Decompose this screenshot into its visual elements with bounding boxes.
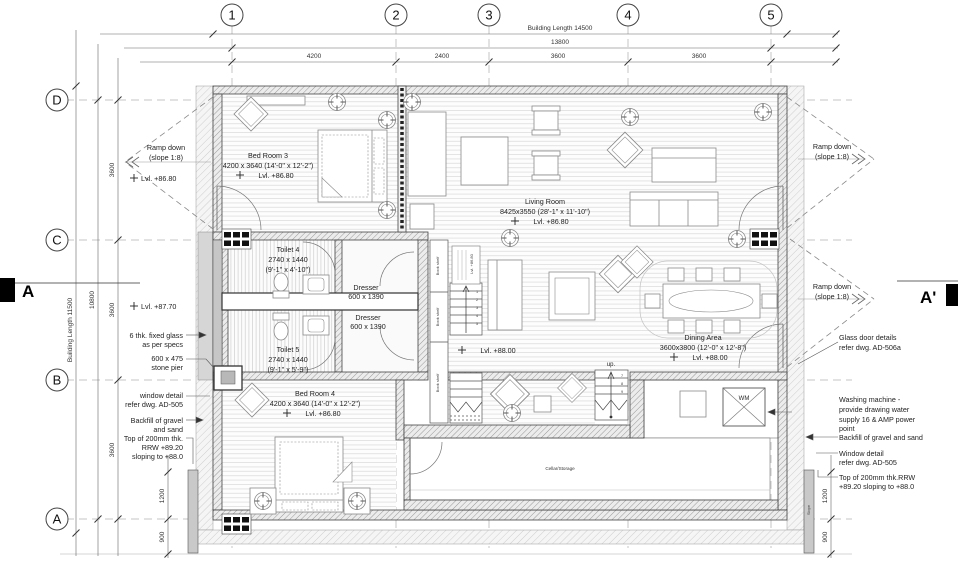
coffee-table	[461, 137, 508, 185]
sink-toilet4	[303, 275, 329, 294]
up-label: up.	[607, 362, 616, 368]
hall-table	[549, 272, 595, 320]
grid-col-3: 3	[485, 8, 492, 23]
dining-table	[663, 284, 760, 318]
cabinet	[408, 112, 446, 196]
utility-table	[680, 391, 706, 417]
ceiling-light-icon	[502, 230, 519, 247]
dim-3600-a: 3600	[551, 53, 566, 60]
column-checker-left	[222, 229, 251, 249]
bookshelf2-label: Book shelf	[435, 307, 440, 327]
stone-pier	[214, 366, 242, 390]
toilet4-size: 2740 x 1440	[268, 255, 308, 264]
grid-row-d: D	[52, 93, 61, 108]
dim-13800: 13800	[551, 39, 569, 46]
stair-num: 7	[621, 374, 623, 378]
ceiling-light-icon	[404, 94, 421, 111]
floor-plan-svg: 1 2 3 4 5 D C B A Building Length 14500 …	[0, 0, 960, 584]
bedroom4-level: Lvl. +86.80	[305, 409, 340, 418]
dim-900-right: 900	[822, 531, 829, 542]
right-backfill: Backfill of gravel and sand	[839, 433, 923, 442]
grid-col-2: 2	[392, 8, 399, 23]
right-washing-2: provide drawing water	[839, 405, 910, 414]
bookshelf3-label: Book shelf	[435, 373, 440, 393]
column-checker-right	[750, 229, 779, 249]
stair-num: 8	[621, 382, 623, 386]
left-annotations: Ramp down (slope 1:8) Lvl. +86.80 Lvl. +…	[124, 143, 185, 461]
dresser1-size: 600 x 1390	[348, 292, 384, 301]
grid-row-c: C	[52, 233, 61, 248]
stair-lower-flight	[450, 373, 482, 423]
dim-3600-left3: 3600	[109, 442, 116, 457]
slope-label: Slope	[806, 504, 811, 515]
plumbing-duct	[222, 293, 418, 310]
stair-num: 4	[476, 314, 478, 318]
grid-row-b: B	[53, 373, 62, 388]
right-rrw-2: +89.20 sloping to +88.0	[839, 482, 914, 491]
left-backfill-2: and sand	[153, 425, 183, 434]
living-name: Living Room	[525, 197, 565, 206]
dresser1-name: Dresser	[353, 283, 379, 292]
right-washing-3: supply 16 & AMP power	[839, 415, 916, 424]
right-ramp1-line2: (slope 1:8)	[815, 152, 849, 161]
stair-num: 1	[476, 290, 478, 294]
dresser2-size: 600 x 1390	[350, 322, 386, 331]
wc-toilet4	[273, 273, 289, 298]
right-window-1: Window detail	[839, 449, 884, 458]
grid-row-a: A	[53, 512, 62, 527]
left-backfill-1: Backfill of gravel	[131, 416, 184, 425]
dim-building-length-top: Building Length 14500	[528, 25, 593, 32]
left-pier-2: stone pier	[151, 363, 183, 372]
left-rrw-1: Top of 200mm thk.	[124, 434, 183, 443]
bedroom3-level: Lvl. +86.80	[258, 171, 293, 180]
ceiling-light-icon	[379, 112, 396, 129]
dim-3600-b: 3600	[692, 53, 707, 60]
ceiling-light-icon	[329, 94, 346, 111]
dim-4200: 4200	[307, 53, 322, 60]
living-size: 8425x3550 (28'-1" x 11'-10")	[500, 207, 590, 216]
right-washing-4: point	[839, 424, 855, 433]
bed-bedroom3	[318, 130, 387, 202]
right-glassdoor-1: Glass door details	[839, 333, 897, 342]
toilet4-size-ft: (9'-1" x 4'-10")	[266, 265, 311, 274]
right-washing-1: Washing machine -	[839, 395, 901, 404]
toilet4-name: Toilet 4	[277, 245, 300, 254]
ceiling-light-icon	[379, 202, 396, 219]
left-lvl-c: Lvl. +87.70	[141, 302, 176, 311]
dresser2-name: Dresser	[355, 313, 381, 322]
ceiling-light-icon	[504, 405, 521, 422]
stair-note-label: Lvl. +86.80	[469, 253, 474, 273]
left-glass-1: 6 thk. fixed glass	[129, 331, 183, 340]
right-ramp1-line1: Ramp down	[813, 142, 851, 151]
right-rrw-1: Top of 200mm thk.RRW	[839, 473, 915, 482]
small-table	[534, 396, 551, 412]
left-glass-2: as per specs	[142, 340, 183, 349]
ceiling-light-icon	[729, 231, 746, 248]
right-window-2: refer dwg. AD-505	[839, 458, 897, 467]
dining-size: 3600x3800 (12'-0" x 12'-8")	[660, 343, 747, 352]
left-rrw-2: RRW +89.20	[142, 443, 183, 452]
bed-bedroom4	[275, 437, 352, 512]
armchair-1	[532, 106, 560, 135]
dim-1200-right: 1200	[822, 488, 829, 503]
living-level: Lvl. +86.80	[533, 217, 568, 226]
wm-label: WM	[739, 396, 750, 402]
toilet5-name: Toilet 5	[277, 345, 300, 354]
toilet5-size-ft: (9'-1" x 5'-9")	[268, 365, 309, 374]
stair-num: 3	[476, 306, 478, 310]
bedroom3-size: 4200 x 3640 (14'-0" x 12'-2")	[223, 161, 314, 170]
hall-level: Lvl. +88.00	[480, 346, 515, 355]
left-ramp-line2: (slope 1:8)	[149, 153, 183, 162]
dim-10800: 10800	[89, 291, 96, 309]
left-pier-1: 600 x 475	[151, 354, 183, 363]
floor-plan-drawing: 1 2 3 4 5 D C B A Building Length 14500 …	[0, 0, 960, 584]
dim-1200-left: 1200	[159, 488, 166, 503]
dining-name: Dining Area	[684, 333, 721, 342]
right-ramp2-line1: Ramp down	[813, 282, 851, 291]
grid-col-4: 4	[624, 8, 631, 23]
cellar-label: Cellar/Storage	[545, 466, 575, 471]
ceiling-light-icon	[622, 109, 639, 126]
armchair-2	[532, 151, 560, 180]
ceiling-light-icon	[349, 493, 366, 510]
right-glassdoor-2: refer dwg. AD-506a	[839, 343, 901, 352]
dining-level: Lvl. +88.00	[692, 353, 727, 362]
sofa-1	[652, 148, 716, 182]
dim-building-length-left: Building Length 11500	[67, 298, 74, 363]
grid-col-1: 1	[228, 8, 235, 23]
ceiling-light-icon	[255, 493, 272, 510]
stair-num: 5	[476, 322, 478, 326]
section-a-label: A	[22, 282, 34, 301]
toilet5-size: 2740 x 1440	[268, 355, 308, 364]
grid-col-5: 5	[767, 8, 774, 23]
stair-num: 9	[621, 390, 623, 394]
left-window-2: refer dwg. AD-505	[125, 400, 183, 409]
stair-num: 2	[476, 298, 478, 302]
sink-toilet5	[303, 316, 329, 335]
bedroom4-name: Bed Room 4	[295, 389, 335, 398]
dim-3600-left2: 3600	[109, 302, 116, 317]
section-a-prime-label: A'	[920, 288, 936, 307]
left-ramp-line1: Ramp down	[147, 143, 185, 152]
left-window-1: window detail	[139, 391, 184, 400]
bedroom3-name: Bed Room 3	[248, 151, 288, 160]
bedroom4-size: 4200 x 3640 (14'-0" x 12'-2")	[270, 399, 361, 408]
dim-2400: 2400	[435, 53, 450, 60]
side-table	[410, 204, 434, 229]
wc-toilet5	[273, 313, 289, 340]
stair-note-box	[452, 246, 480, 284]
ceiling-light-icon	[755, 104, 772, 121]
bookshelf1-label: Book shelf	[435, 256, 440, 276]
sofa-2	[630, 192, 718, 226]
dim-3600-left1: 3600	[109, 162, 116, 177]
glass-wall	[198, 232, 213, 380]
hall-sofa	[488, 260, 522, 330]
left-lvl-d: Lvl. +86.80	[141, 174, 176, 183]
column-checker-bottom	[222, 514, 251, 534]
right-ramp2-line2: (slope 1:8)	[815, 292, 849, 301]
dim-900-left: 900	[159, 531, 166, 542]
washing-machine	[723, 388, 765, 426]
left-rrw-3: sloping to +88.0	[132, 452, 183, 461]
